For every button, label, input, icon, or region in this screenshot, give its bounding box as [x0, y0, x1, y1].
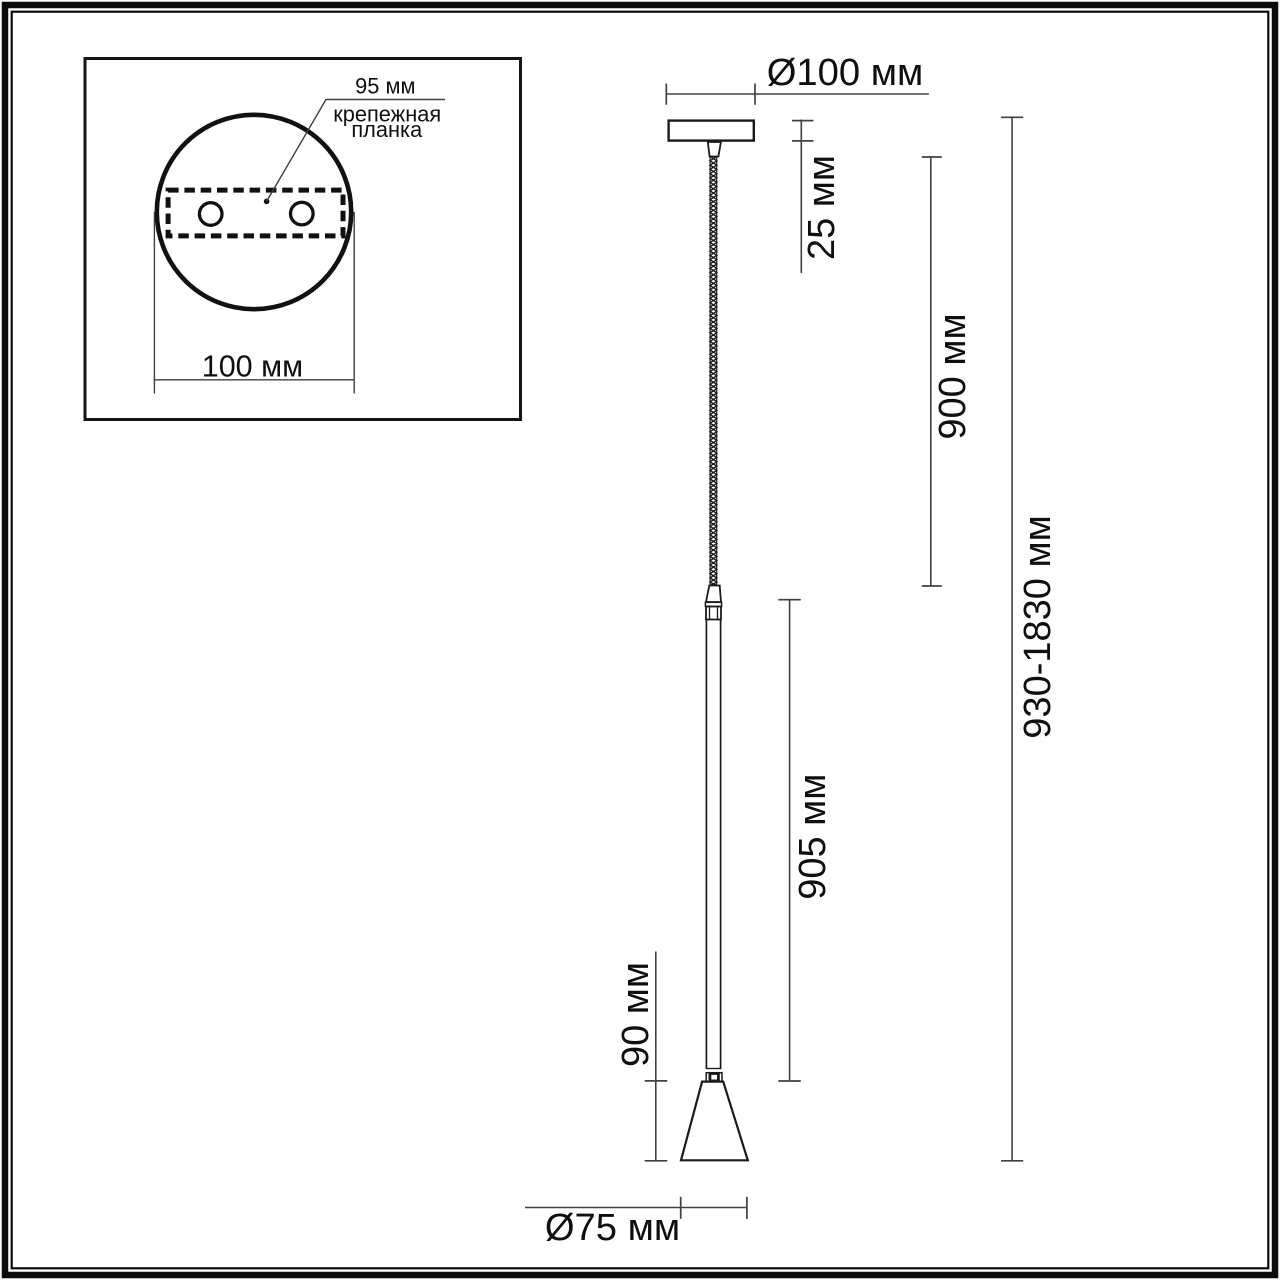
svg-text:Ø100 мм: Ø100 мм	[767, 51, 924, 94]
svg-text:планка: планка	[351, 117, 423, 142]
svg-text:100 мм: 100 мм	[202, 349, 303, 383]
svg-text:Ø75 мм: Ø75 мм	[545, 1206, 680, 1249]
svg-text:90 мм: 90 мм	[615, 962, 657, 1067]
svg-text:900 мм: 900 мм	[932, 313, 974, 439]
svg-text:905 мм: 905 мм	[792, 774, 834, 900]
svg-text:930-1830 мм: 930-1830 мм	[1017, 515, 1059, 738]
svg-text:25 мм: 25 мм	[801, 155, 843, 260]
svg-text:95 мм: 95 мм	[355, 73, 415, 98]
